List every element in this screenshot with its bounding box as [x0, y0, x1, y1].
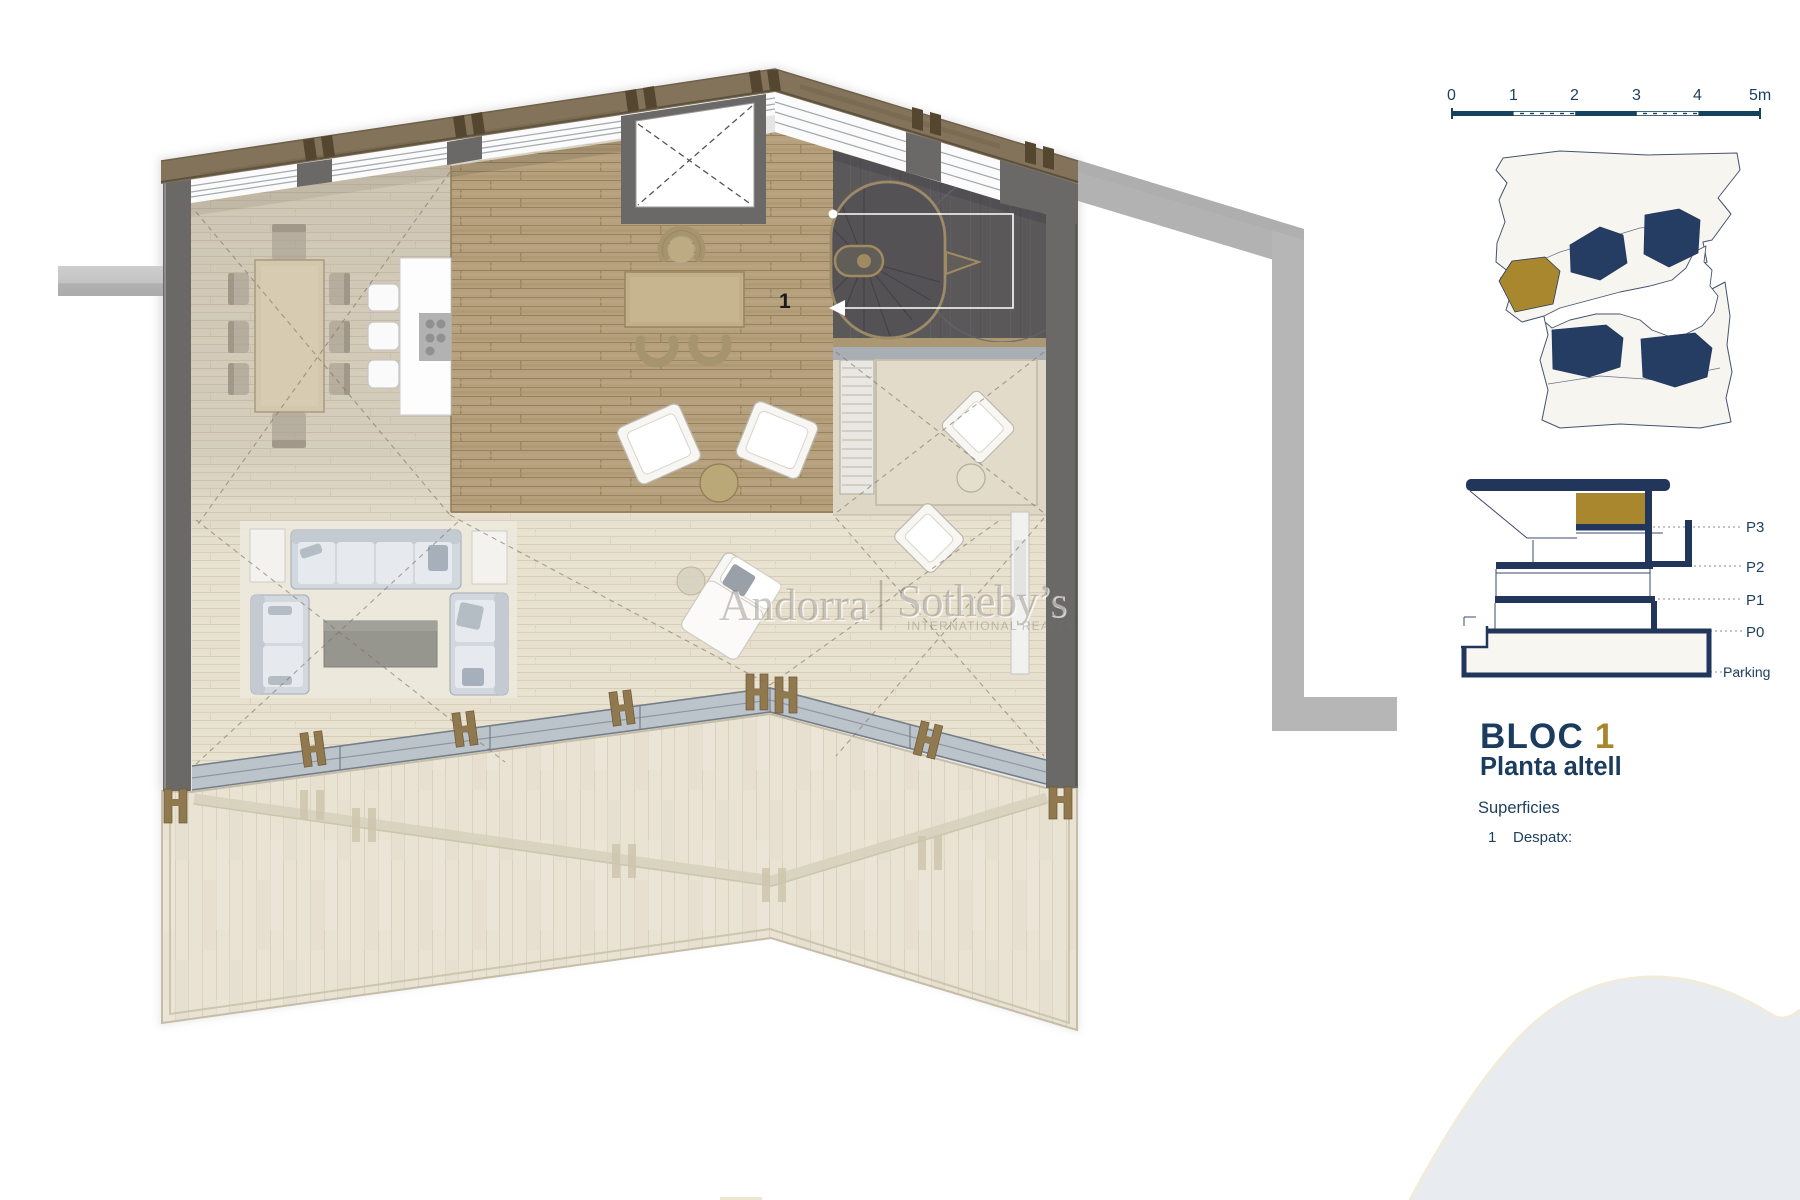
- svg-text:1: 1: [1509, 87, 1518, 104]
- svg-text:3: 3: [1632, 87, 1641, 104]
- svg-text:INTERNATIONAL REALTY: INTERNATIONAL REALTY: [907, 619, 1075, 633]
- svg-text:4: 4: [1693, 87, 1702, 104]
- svg-text:Planta altell: Planta altell: [1480, 753, 1622, 781]
- svg-text:Superficies: Superficies: [1478, 799, 1560, 817]
- svg-text:Andorra: Andorra: [719, 580, 869, 630]
- svg-text:BLOC 1: BLOC 1: [1480, 717, 1616, 756]
- svg-text:P3: P3: [1746, 519, 1764, 536]
- svg-text:2: 2: [1570, 87, 1579, 104]
- svg-text:P0: P0: [1746, 624, 1764, 641]
- svg-text:Parking: Parking: [1723, 664, 1770, 680]
- svg-text:5m: 5m: [1749, 87, 1771, 104]
- svg-text:1: 1: [779, 290, 791, 313]
- svg-text:1 Despatx:: 1 Despatx:: [1488, 829, 1572, 846]
- svg-text:P2: P2: [1746, 559, 1764, 576]
- svg-text:0: 0: [1447, 87, 1456, 104]
- svg-text:P1: P1: [1746, 592, 1764, 609]
